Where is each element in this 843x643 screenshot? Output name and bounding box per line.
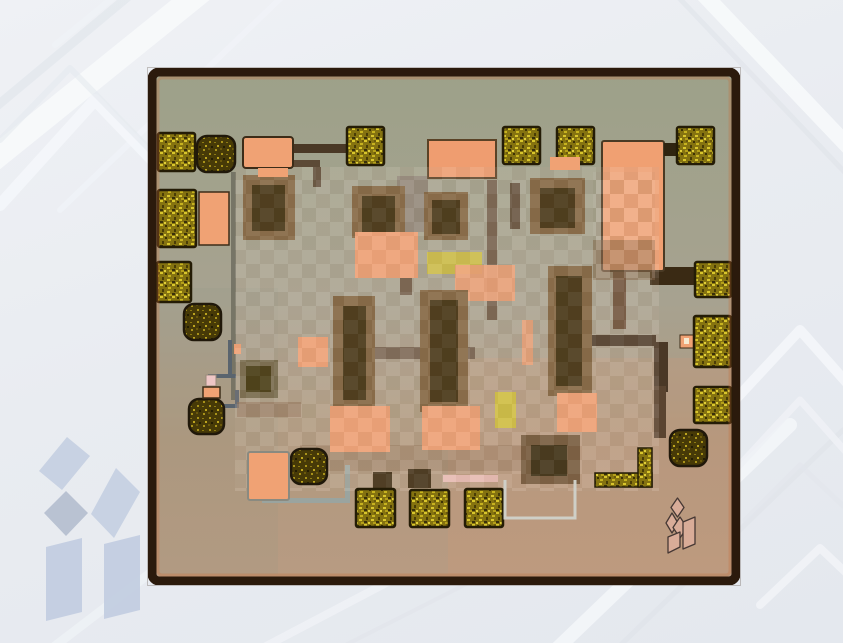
logo-diamond-middle: [44, 491, 88, 536]
bg-chevron: [760, 548, 843, 605]
bond-pad-left-2: [158, 190, 196, 247]
logo-diamond-right: [91, 468, 140, 538]
logo-diamond-top: [39, 437, 90, 490]
bond-pad-bottom-3: [465, 489, 503, 527]
bond-pad-rounded-2: [184, 304, 221, 340]
bond-pad-right-2: [694, 316, 731, 367]
pad-orange-topleft: [243, 137, 293, 168]
chip-die-photo: [148, 68, 740, 585]
logo-leg-right: [104, 535, 140, 619]
bond-pad-left-3: [157, 262, 191, 302]
bond-pad-right-3: [694, 387, 731, 423]
mosaic-overlay-right: [593, 172, 655, 280]
pad-orange-small-left: [203, 387, 220, 398]
bond-pad-top-1: [347, 127, 384, 165]
pad-orange-bottomleft: [248, 452, 289, 500]
pad-orange-tab-top: [550, 157, 580, 170]
pad-orange-topleft-tab: [258, 168, 288, 177]
pad-connector-dot: [684, 338, 689, 344]
trace-gold-L-v: [638, 448, 652, 487]
bg-chevron: [735, 330, 843, 400]
bond-pad-top-4: [677, 127, 714, 164]
bond-pad-rounded-bottom: [291, 449, 327, 484]
pad-orange-left: [199, 192, 229, 245]
bond-pad-bottom-2: [410, 490, 449, 527]
bond-pad-rounded-1: [197, 136, 235, 172]
brand-logo: [39, 437, 140, 621]
pad-pink-small: [206, 375, 216, 386]
bond-pad-rounded-3: [189, 399, 224, 434]
chip-features: [152, 72, 736, 581]
bond-pad-right-1: [695, 262, 731, 297]
trace-left-a: [228, 340, 232, 378]
die-logo-leg-right: [683, 517, 695, 549]
bond-pad-rounded-right: [670, 430, 707, 466]
trace-top-link: [292, 144, 348, 153]
bond-pad-left-1: [158, 133, 195, 171]
bond-pad-bottom-1: [356, 489, 395, 527]
logo-leg-left: [46, 538, 82, 621]
bond-pad-top-2: [503, 127, 540, 164]
photo-stage: [0, 0, 843, 643]
